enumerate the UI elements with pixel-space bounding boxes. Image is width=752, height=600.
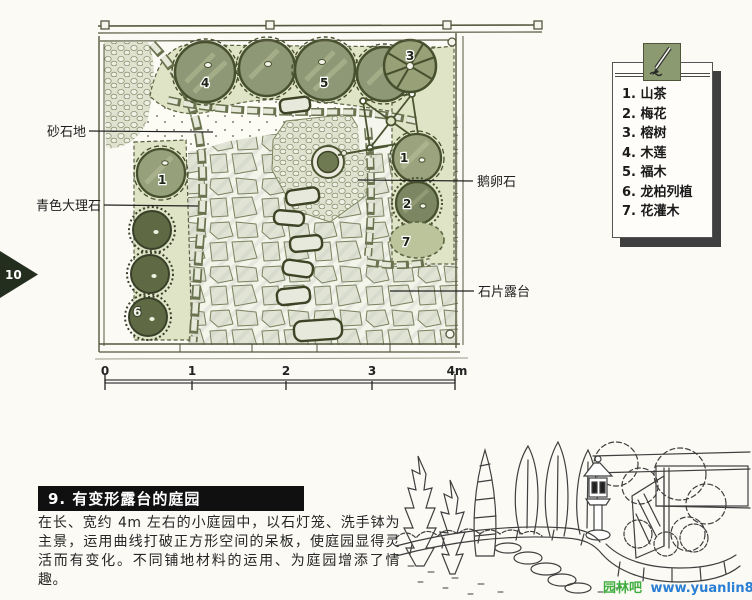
watermark-site-name: 园林吧 — [603, 581, 642, 596]
tree-2-number: 2 — [403, 197, 411, 211]
section-body-text: 在长、宽约 4m 左右的小庭园中，以石灯笼、洗手钵为主景，运用曲线打破正方形空间… — [38, 514, 400, 590]
label-sand: 砂石地 — [47, 125, 86, 140]
scale-tick-3: 3 — [368, 364, 376, 378]
legend-item: 2. 梅花 — [622, 105, 693, 125]
tree-6-number: 6 — [133, 305, 141, 319]
tree-7-shrub: 7 — [390, 222, 444, 258]
round-canopy-trees — [594, 442, 726, 551]
poplar-trees — [515, 442, 597, 536]
tree-3-number: 3 — [406, 49, 414, 63]
raised-bed — [602, 520, 740, 582]
label-marble: 青色大理石 — [36, 198, 101, 214]
label-pebble: 鹅卵石 — [477, 174, 516, 190]
garden-plan-drawing: 4 5 3 — [0, 0, 560, 400]
legend-item: 3. 榕树 — [622, 124, 693, 144]
legend-item: 5. 福木 — [622, 163, 693, 183]
plant-legend-list: 1. 山茶 2. 梅花 3. 榕树 4. 木莲 5. 福木 6. 龙柏列植 7.… — [622, 85, 693, 222]
legend-item: 1. 山茶 — [622, 85, 693, 105]
scale-bar: 0 1 2 3 4m — [101, 364, 468, 390]
scale-tick-1: 1 — [188, 364, 196, 378]
book-page: { "page": { "marker": "10" }, "legend": … — [0, 0, 752, 600]
section-title: 9. 有变形露台的庭园 — [48, 488, 200, 509]
scale-tick-0: 0 — [101, 364, 109, 378]
legend-tab — [643, 43, 681, 81]
sketch-stepping-stones — [495, 543, 591, 593]
legend-item: 6. 龙柏列植 — [622, 183, 693, 203]
legend-item: 7. 花灌木 — [622, 202, 693, 222]
fence-post — [632, 468, 669, 558]
tree-1-right-number: 1 — [400, 151, 408, 165]
tree-3-fan: 3 — [384, 40, 436, 92]
pencil-icon — [647, 46, 677, 78]
scale-tick-2: 2 — [282, 364, 290, 378]
tree-5-number: 5 — [320, 76, 328, 90]
page-number: 10 — [5, 268, 22, 282]
watermark: 园林吧 www.yuanlin8.com — [603, 577, 752, 596]
ground-texture — [408, 566, 621, 594]
section-title-bar: 9. 有变形露台的庭园 — [38, 486, 304, 511]
tree-7-number: 7 — [402, 235, 410, 249]
watermark-site-url: www.yuanlin8.com — [651, 581, 752, 596]
legend-item: 4. 木莲 — [622, 144, 693, 164]
background-wall — [593, 452, 750, 508]
tree-group-right: 1 2 7 — [390, 131, 444, 258]
juniper-row: 6 — [125, 207, 175, 340]
label-terrace: 石片露台 — [478, 285, 530, 300]
tree-mid-a — [236, 37, 298, 99]
tree-4-number: 4 — [201, 76, 209, 90]
scale-tick-4m: 4m — [447, 364, 468, 378]
conifer-trees — [404, 456, 465, 574]
tree-1-left-number: 1 — [158, 173, 166, 187]
perspective-sketch — [388, 416, 752, 600]
legend-box: 1. 山茶 2. 梅花 3. 榕树 4. 木莲 5. 福木 6. 龙柏列植 7.… — [612, 62, 713, 238]
